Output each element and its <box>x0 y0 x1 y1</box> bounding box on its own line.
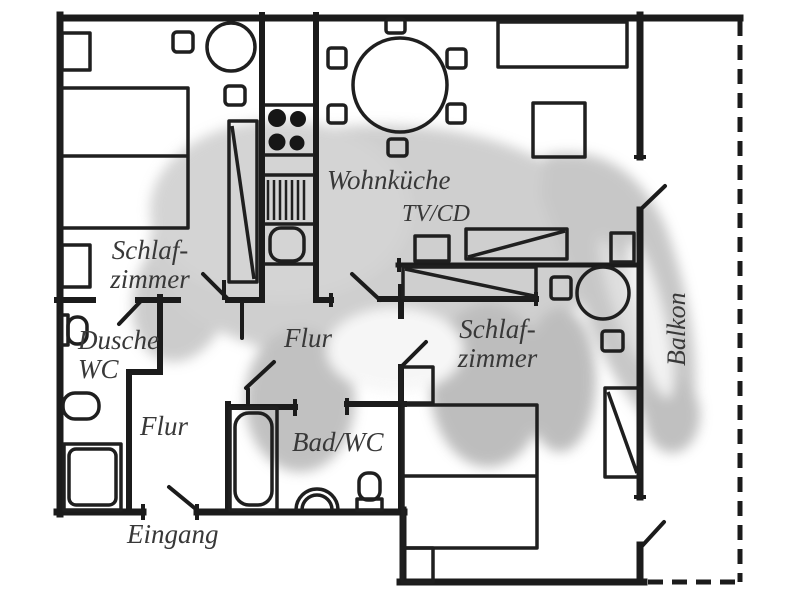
room-label-bedroom-left: Schlaf- zimmer <box>100 236 200 294</box>
washbasin-bath-inner <box>302 495 332 510</box>
shower-tray-outer <box>64 444 121 510</box>
floor-plan: Schlaf- zimmer Dusche WC Flur Flur Wohnk… <box>0 0 800 600</box>
label-tv-cd: TV/CD <box>402 200 470 229</box>
room-label-hall-entry: Flur <box>140 412 188 441</box>
burner-1 <box>268 109 286 127</box>
burner-3 <box>269 134 286 151</box>
shower-tray-inner <box>69 449 116 505</box>
room-label-bedroom-left-line2: zimmer <box>100 265 200 294</box>
room-label-balcony: Balkon <box>662 292 691 366</box>
dining-stool-left-2 <box>328 105 346 123</box>
room-label-living-kitchen: Wohnküche <box>327 166 450 195</box>
burner-2 <box>290 111 306 127</box>
door-entrance <box>169 487 197 510</box>
square-table <box>533 103 585 157</box>
toilet-bath-bowl <box>359 473 380 500</box>
label-entrance: Eingang <box>127 520 219 549</box>
washbasin-shower-room <box>63 393 99 419</box>
dining-stool-right-2 <box>447 104 465 123</box>
wardrobe-bedroom-right-door <box>608 392 637 473</box>
counter-hatch <box>268 180 304 220</box>
room-label-bedroom-right-line1: Schlaf- <box>445 315 550 344</box>
table-bedroom-left <box>207 23 255 71</box>
dining-stool-right-1 <box>447 49 466 68</box>
stool-bedroom-left-2 <box>225 86 245 105</box>
room-label-bedroom-left-line1: Schlaf- <box>100 236 200 265</box>
room-label-bedroom-right: Schlaf- zimmer <box>445 315 550 373</box>
room-label-hall-center: Flur <box>284 324 332 353</box>
sideboard-top <box>498 22 627 67</box>
room-label-shower-wc-line2: WC <box>78 355 159 384</box>
door-balcony-lower <box>642 522 664 546</box>
dining-table <box>353 38 447 132</box>
bedside-bedroom-left <box>62 245 90 287</box>
room-label-shower-wc-line1: Dusche <box>78 326 159 355</box>
room-label-bedroom-right-line2: zimmer <box>445 344 550 373</box>
room-label-shower-wc: Dusche WC <box>78 326 159 384</box>
shelf-bedroom-left <box>62 33 90 70</box>
room-label-bath-wc: Bad/WC <box>292 428 384 457</box>
badger-belly-highlight <box>327 308 463 392</box>
bedside-bedroom-right-bottom <box>402 548 433 582</box>
dining-stool-left-1 <box>328 48 346 68</box>
burner-4 <box>290 136 305 151</box>
stool-bedroom-left-1 <box>173 32 193 52</box>
toilet-bath-tank <box>357 499 382 510</box>
